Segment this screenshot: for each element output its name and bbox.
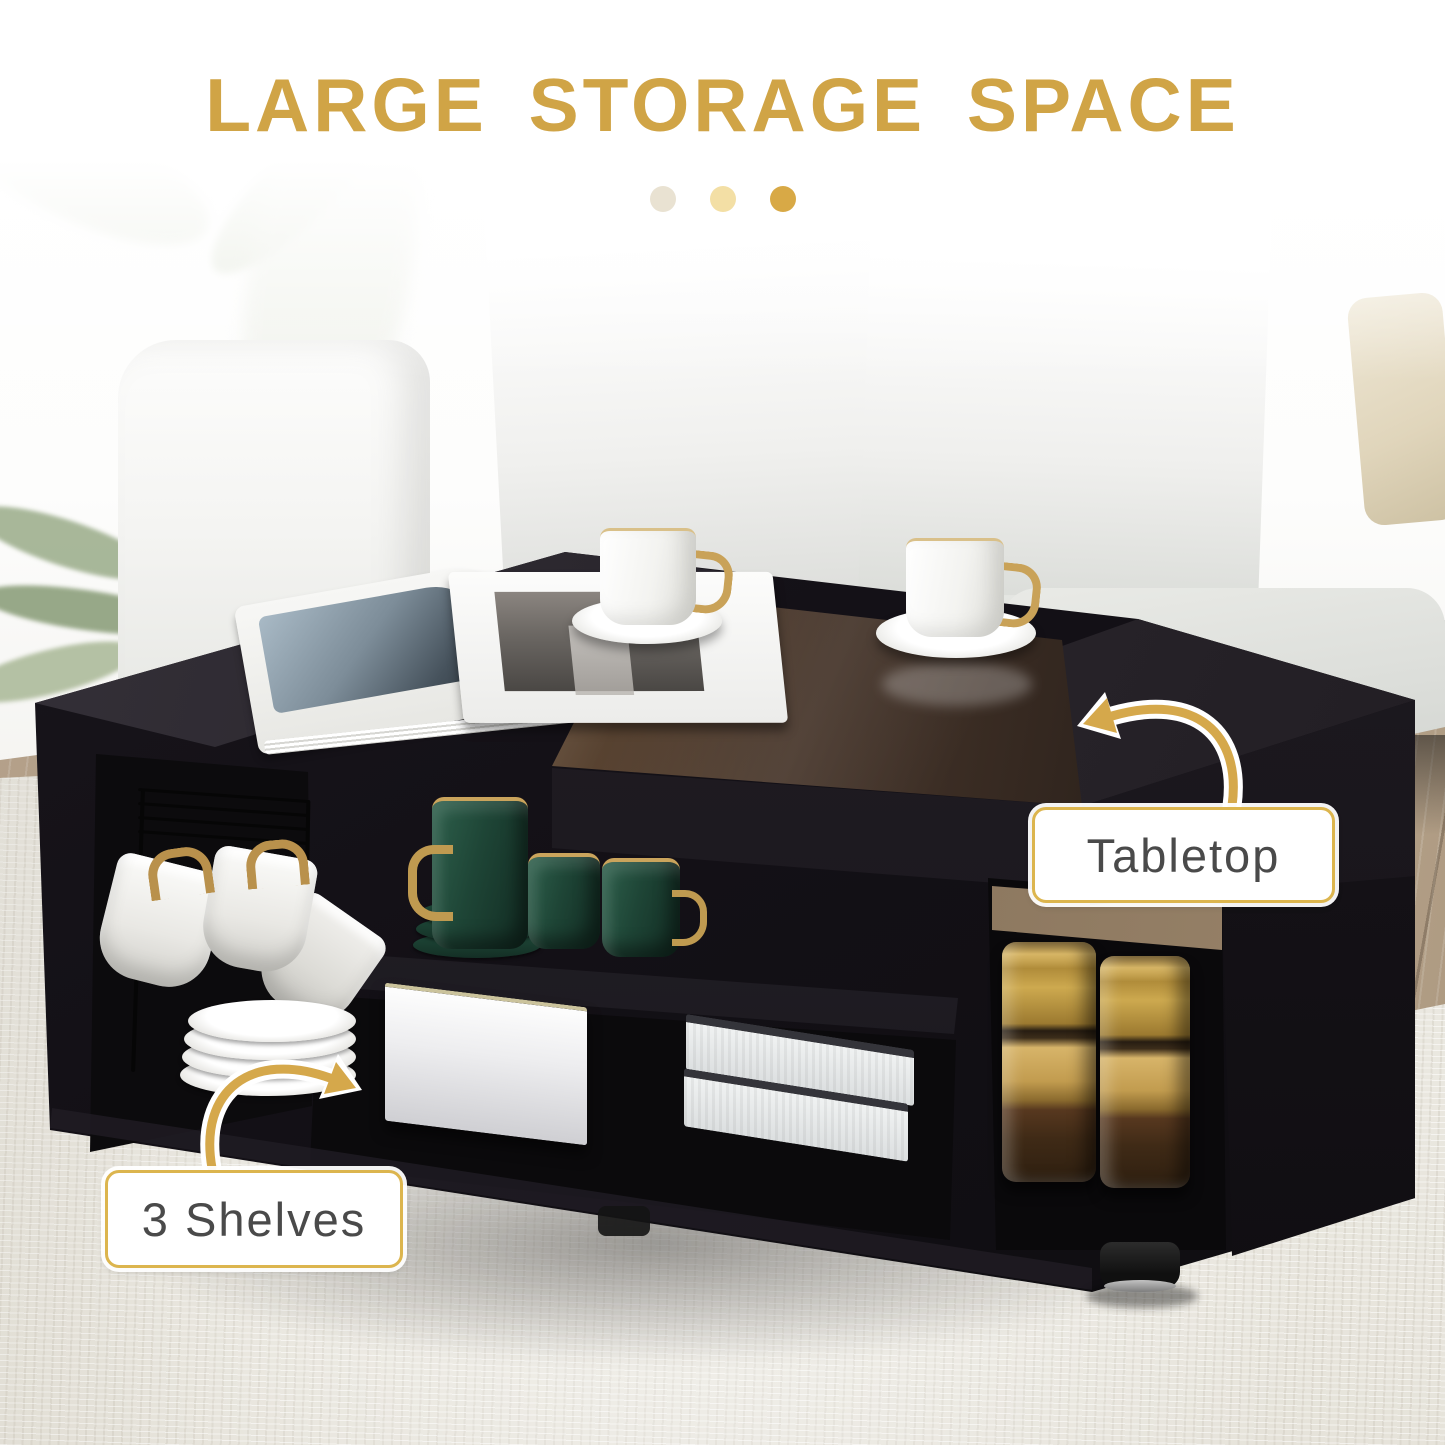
green-mug	[602, 858, 680, 957]
white-storage-box	[385, 983, 587, 1146]
plate-stack	[188, 1000, 356, 1042]
gold-coffee-jar	[1002, 942, 1096, 1182]
decor-dots	[0, 186, 1445, 212]
green-mug	[528, 853, 600, 949]
decor-dot	[770, 186, 796, 212]
adjustable-foot	[598, 1206, 650, 1236]
gold-mug-handle	[408, 845, 453, 921]
decor-dot	[650, 186, 676, 212]
product-feature-image: Tabletop 3 Shelves LARGE STORAGE SPACE	[0, 0, 1445, 1445]
white-teacup	[600, 528, 696, 625]
decor-dot	[710, 186, 736, 212]
page-title: LARGE STORAGE SPACE	[0, 62, 1445, 148]
white-teacup	[906, 538, 1004, 637]
adjustable-foot	[1100, 1242, 1180, 1288]
gold-coffee-jar	[1100, 956, 1190, 1188]
tabletop-callout: Tabletop	[1032, 807, 1335, 903]
shelves-callout: 3 Shelves	[105, 1170, 403, 1268]
tabletop-callout-label: Tabletop	[1087, 828, 1281, 883]
shelves-callout-label: 3 Shelves	[142, 1192, 366, 1247]
